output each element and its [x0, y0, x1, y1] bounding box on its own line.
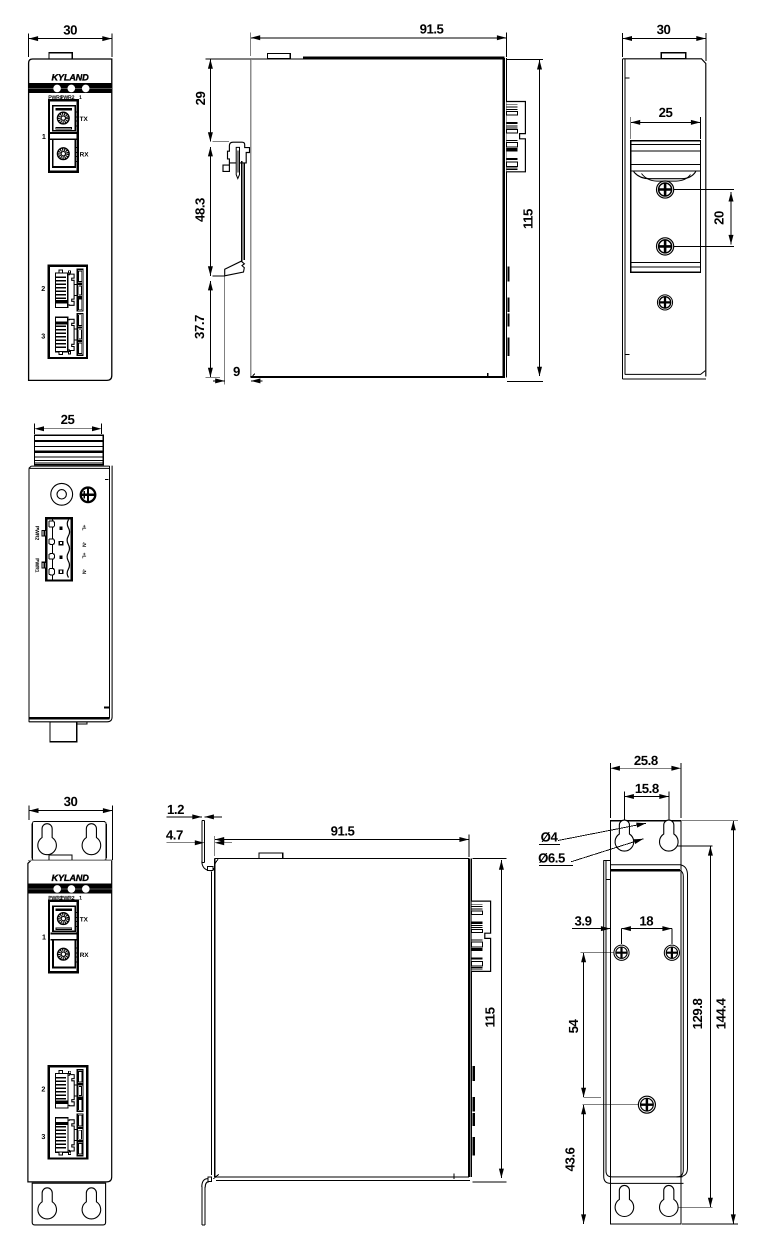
svg-text:Ø6.5: Ø6.5: [538, 850, 565, 865]
svg-text:37.7: 37.7: [192, 315, 207, 339]
svg-text:29: 29: [193, 92, 208, 106]
svg-text:20: 20: [712, 211, 727, 225]
svg-text:43.6: 43.6: [563, 1147, 578, 1171]
svg-text:54: 54: [566, 1019, 581, 1034]
svg-text:25: 25: [61, 412, 75, 427]
svg-text:115: 115: [521, 209, 536, 229]
svg-text:30: 30: [657, 22, 671, 37]
svg-text:9: 9: [233, 364, 240, 379]
svg-text:115: 115: [482, 1007, 497, 1027]
svg-text:-N: -N: [81, 569, 87, 575]
svg-text:129.8: 129.8: [690, 999, 705, 1030]
svg-text:25.8: 25.8: [634, 753, 658, 768]
svg-text:30: 30: [64, 794, 78, 809]
svg-text:Ø4: Ø4: [541, 830, 559, 845]
svg-text:18: 18: [639, 914, 653, 929]
svg-text:PWR1: PWR1: [34, 558, 40, 573]
svg-text:91.5: 91.5: [420, 22, 444, 37]
svg-text:15.8: 15.8: [635, 781, 659, 796]
svg-text:-N: -N: [81, 542, 87, 548]
svg-text:PWR2: PWR2: [34, 526, 40, 541]
svg-text:25: 25: [659, 105, 673, 120]
svg-text:+L: +L: [81, 552, 87, 559]
svg-text:30: 30: [63, 22, 77, 37]
svg-text:+L: +L: [81, 525, 87, 532]
svg-text:91.5: 91.5: [331, 823, 355, 838]
svg-text:3.9: 3.9: [575, 914, 592, 929]
svg-text:144.4: 144.4: [713, 998, 728, 1030]
svg-text:4.7: 4.7: [166, 828, 183, 843]
svg-text:1.2: 1.2: [167, 802, 184, 817]
svg-text:48.3: 48.3: [193, 198, 208, 222]
